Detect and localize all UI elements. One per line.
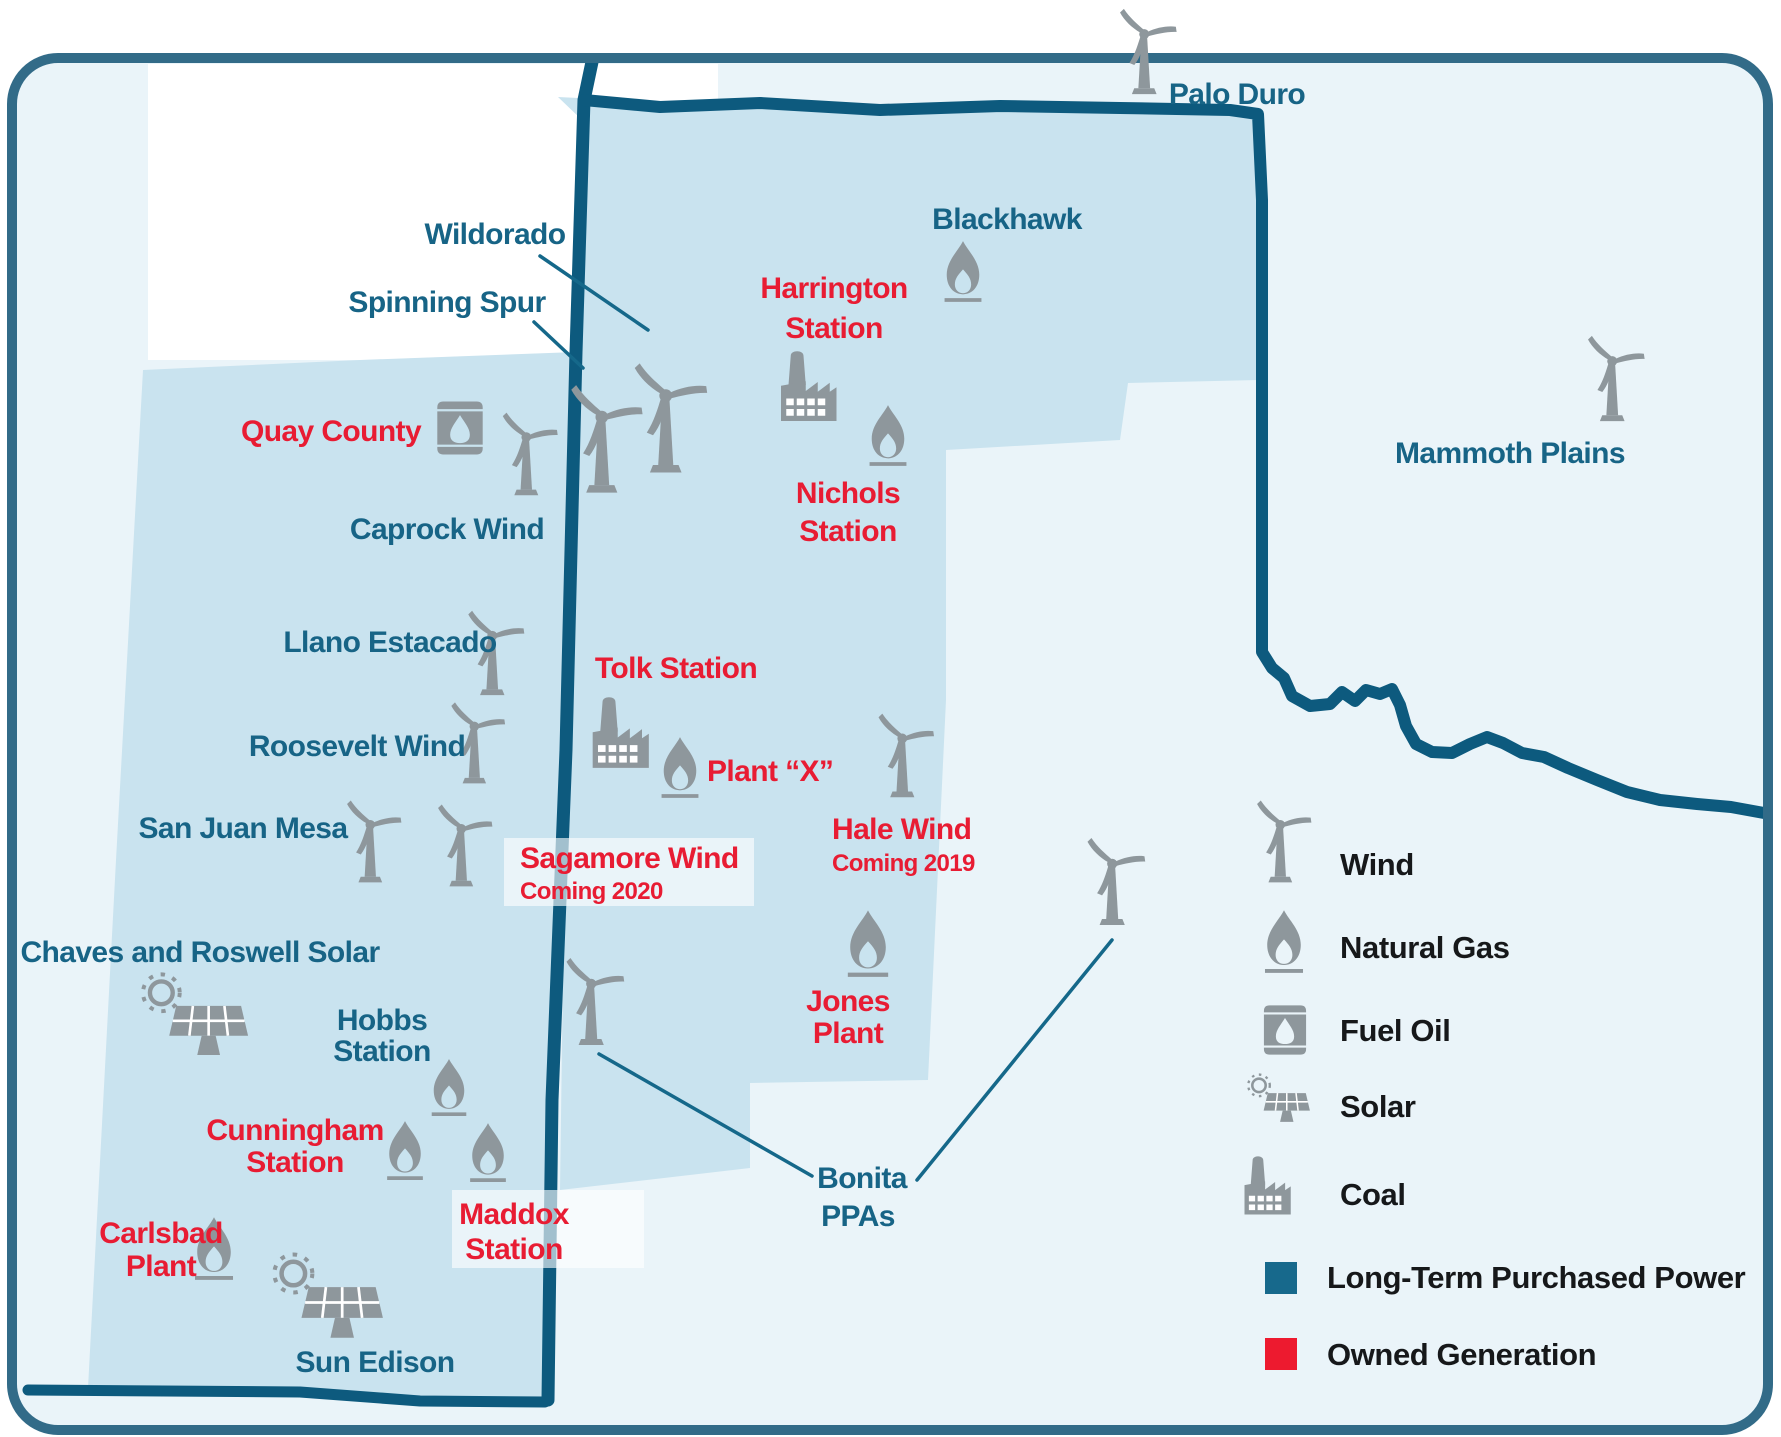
- service-territory-map: Palo DuroBlackhawkWildoradoSpinning Spur…: [0, 0, 1781, 1437]
- legend-label: Owned Generation: [1327, 1337, 1596, 1372]
- facility-label: Sagamore Wind: [520, 842, 739, 875]
- facility-label: Hale Wind: [832, 813, 971, 846]
- facility-label: Jones: [806, 985, 890, 1018]
- facility-label: Plant: [126, 1250, 197, 1283]
- facility-label: Mammoth Plains: [1395, 437, 1625, 470]
- facility-label: Harrington: [760, 272, 907, 305]
- legend-label: Coal: [1340, 1177, 1406, 1212]
- facility-label: Roosevelt Wind: [249, 730, 465, 763]
- facility-label: Spinning Spur: [348, 286, 546, 319]
- legend-swatch-long-term-purchased-power: [1265, 1262, 1297, 1294]
- facility-label: Carlsbad: [99, 1217, 223, 1250]
- facility-label: PPAs: [821, 1200, 895, 1233]
- facility-label: Nichols: [796, 477, 900, 510]
- facility-label: Llano Estacado: [283, 626, 497, 659]
- facility-label: Hobbs: [337, 1004, 427, 1037]
- facility-label: Station: [785, 312, 882, 345]
- legend-swatch-owned-generation: [1265, 1338, 1297, 1370]
- facility-label: Maddox: [459, 1198, 570, 1231]
- facility-label: Quay County: [241, 415, 422, 448]
- facility-label: Blackhawk: [932, 203, 1083, 236]
- facility-label: Wildorado: [425, 218, 566, 251]
- facility-label: Cunningham: [206, 1114, 383, 1147]
- facility-label: Caprock Wind: [350, 513, 544, 546]
- facility-label: Palo Duro: [1169, 78, 1306, 111]
- facility-label: Chaves and Roswell Solar: [20, 936, 380, 969]
- facility-label: San Juan Mesa: [139, 812, 349, 845]
- legend-label: Wind: [1340, 847, 1414, 882]
- facility-label: Tolk Station: [595, 652, 757, 685]
- legend-label: Fuel Oil: [1340, 1013, 1450, 1048]
- legend-label: Solar: [1340, 1089, 1416, 1124]
- facility-label: Station: [799, 515, 896, 548]
- power-generation-map-page: Palo DuroBlackhawkWildoradoSpinning Spur…: [0, 0, 1781, 1437]
- facility-label: Station: [465, 1233, 562, 1266]
- facility-label: Station: [246, 1146, 343, 1179]
- legend-label: Long-Term Purchased Power: [1327, 1260, 1746, 1295]
- facility-label: Coming 2019: [832, 850, 975, 877]
- facility-label: Bonita: [817, 1162, 908, 1195]
- legend-item-long-term-purchased-power: Long-Term Purchased Power: [1265, 1260, 1746, 1295]
- facility-label: Sun Edison: [295, 1346, 454, 1379]
- facility-label: Plant: [813, 1017, 884, 1050]
- facility-label: Plant “X”: [707, 755, 833, 788]
- facility-label: Coming 2020: [520, 878, 663, 905]
- legend-label: Natural Gas: [1340, 930, 1510, 965]
- facility-label: Station: [333, 1035, 430, 1068]
